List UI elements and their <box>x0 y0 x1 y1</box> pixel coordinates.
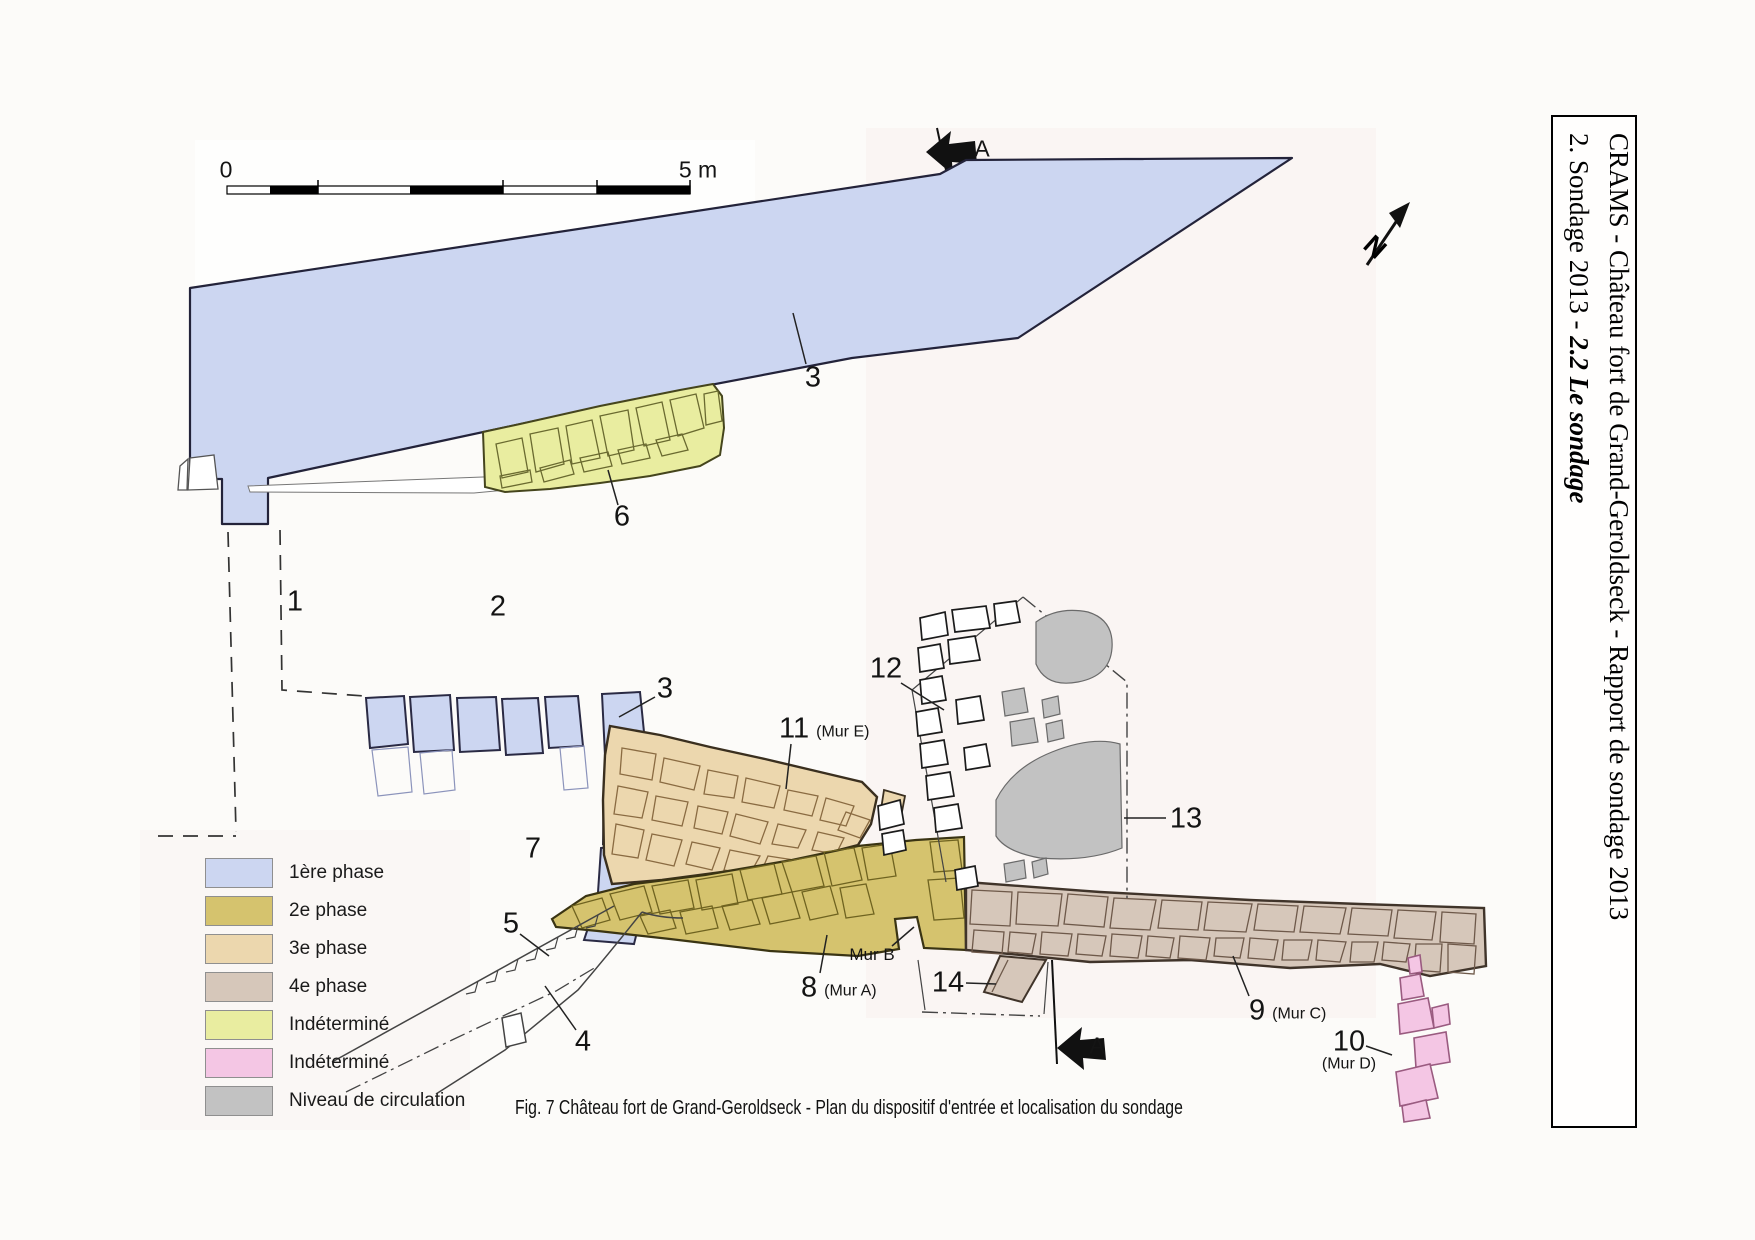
legend-swatch-indetermine-pink <box>205 1048 273 1078</box>
label-mur-d-10: 10 (Mur D) <box>1322 1026 1376 1073</box>
section-label-top: A <box>974 136 989 163</box>
label-wall-3-lower: 3 <box>657 675 673 704</box>
report-section-emphasis: 2.2 Le sondage <box>1564 336 1594 503</box>
label-11-number: 11 <box>779 715 809 744</box>
report-section-prefix: 2. Sondage 2013 - <box>1564 133 1594 336</box>
scale-max-label: 5 m <box>679 157 717 184</box>
legend-swatch-phase4 <box>205 972 273 1002</box>
label-path-4: 4 <box>575 1028 591 1057</box>
legend-label-phase1: 1ère phase <box>289 862 384 884</box>
legend-item-phase3: 3e phase <box>205 934 465 964</box>
label-revetment-5: 5 <box>503 910 519 939</box>
label-9-sub: (Mur C) <box>1272 1006 1326 1022</box>
label-mur-e-11: 11 (Mur E) <box>779 715 869 744</box>
legend-item-circulation: Niveau de circulation <box>205 1086 465 1116</box>
label-stub-14: 14 <box>932 969 964 998</box>
legend-label-phase2: 2e phase <box>289 900 367 922</box>
legend-swatch-phase2 <box>205 896 273 926</box>
label-rubble-12: 12 <box>870 655 902 684</box>
label-masonry-6: 6 <box>614 503 630 532</box>
label-area-7: 7 <box>525 835 541 864</box>
label-8-number: 8 <box>801 974 817 1003</box>
legend-label-phase3: 3e phase <box>289 938 367 960</box>
label-circulation-13: 13 <box>1170 805 1202 834</box>
label-10-number: 10 <box>1333 1026 1365 1056</box>
report-page: N <box>0 0 1755 1240</box>
stones-pink-murD <box>1396 955 1450 1122</box>
label-wall-3-upper: 3 <box>805 364 821 393</box>
legend-item-phase4: 4e phase <box>205 972 465 1002</box>
dashed-guides <box>158 530 364 836</box>
legend-swatch-indetermine-yellow <box>205 1010 273 1040</box>
legend-label-phase4: 4e phase <box>289 976 367 998</box>
legend: 1ère phase 2e phase 3e phase 4e phase In… <box>205 858 465 1124</box>
label-8-sub: (Mur A) <box>824 983 876 999</box>
label-11-sub: (Mur E) <box>816 724 869 740</box>
report-section-line: 2. Sondage 2013 - 2.2 Le sondage <box>1559 133 1599 1116</box>
scale-zero-label: 0 <box>220 157 233 184</box>
report-title-line: CRAMS - Château fort de Grand-Geroldseck… <box>1599 133 1639 1116</box>
legend-item-phase1: 1ère phase <box>205 858 465 888</box>
legend-label-indetermine-yellow: Indéterminé <box>289 1014 389 1036</box>
legend-label-indetermine-pink: Indéterminé <box>289 1052 389 1074</box>
section-label-bottom: A <box>1089 1033 1104 1060</box>
legend-item-phase2: 2e phase <box>205 896 465 926</box>
label-area-1: 1 <box>287 588 303 617</box>
legend-label-circulation: Niveau de circulation <box>289 1090 465 1112</box>
legend-swatch-phase1 <box>205 858 273 888</box>
legend-item-indetermine-yellow: Indéterminé <box>205 1010 465 1040</box>
label-10-sub: (Mur D) <box>1322 1057 1376 1074</box>
label-9-number: 9 <box>1249 997 1265 1026</box>
report-header-box: CRAMS - Château fort de Grand-Geroldseck… <box>1551 115 1637 1128</box>
label-mur-a-8: 8 (Mur A) <box>801 974 877 1003</box>
report-header-text: CRAMS - Château fort de Grand-Geroldseck… <box>1553 117 1644 1126</box>
label-mur-c-9: 9 (Mur C) <box>1249 997 1326 1026</box>
legend-item-indetermine-pink: Indéterminé <box>205 1048 465 1078</box>
legend-swatch-circulation <box>205 1086 273 1116</box>
label-area-2: 2 <box>490 593 506 622</box>
legend-swatch-phase3 <box>205 934 273 964</box>
label-mur-b: Mur B <box>849 945 894 965</box>
figure-caption: Fig. 7 Château fort de Grand-Geroldseck … <box>515 1097 1183 1120</box>
